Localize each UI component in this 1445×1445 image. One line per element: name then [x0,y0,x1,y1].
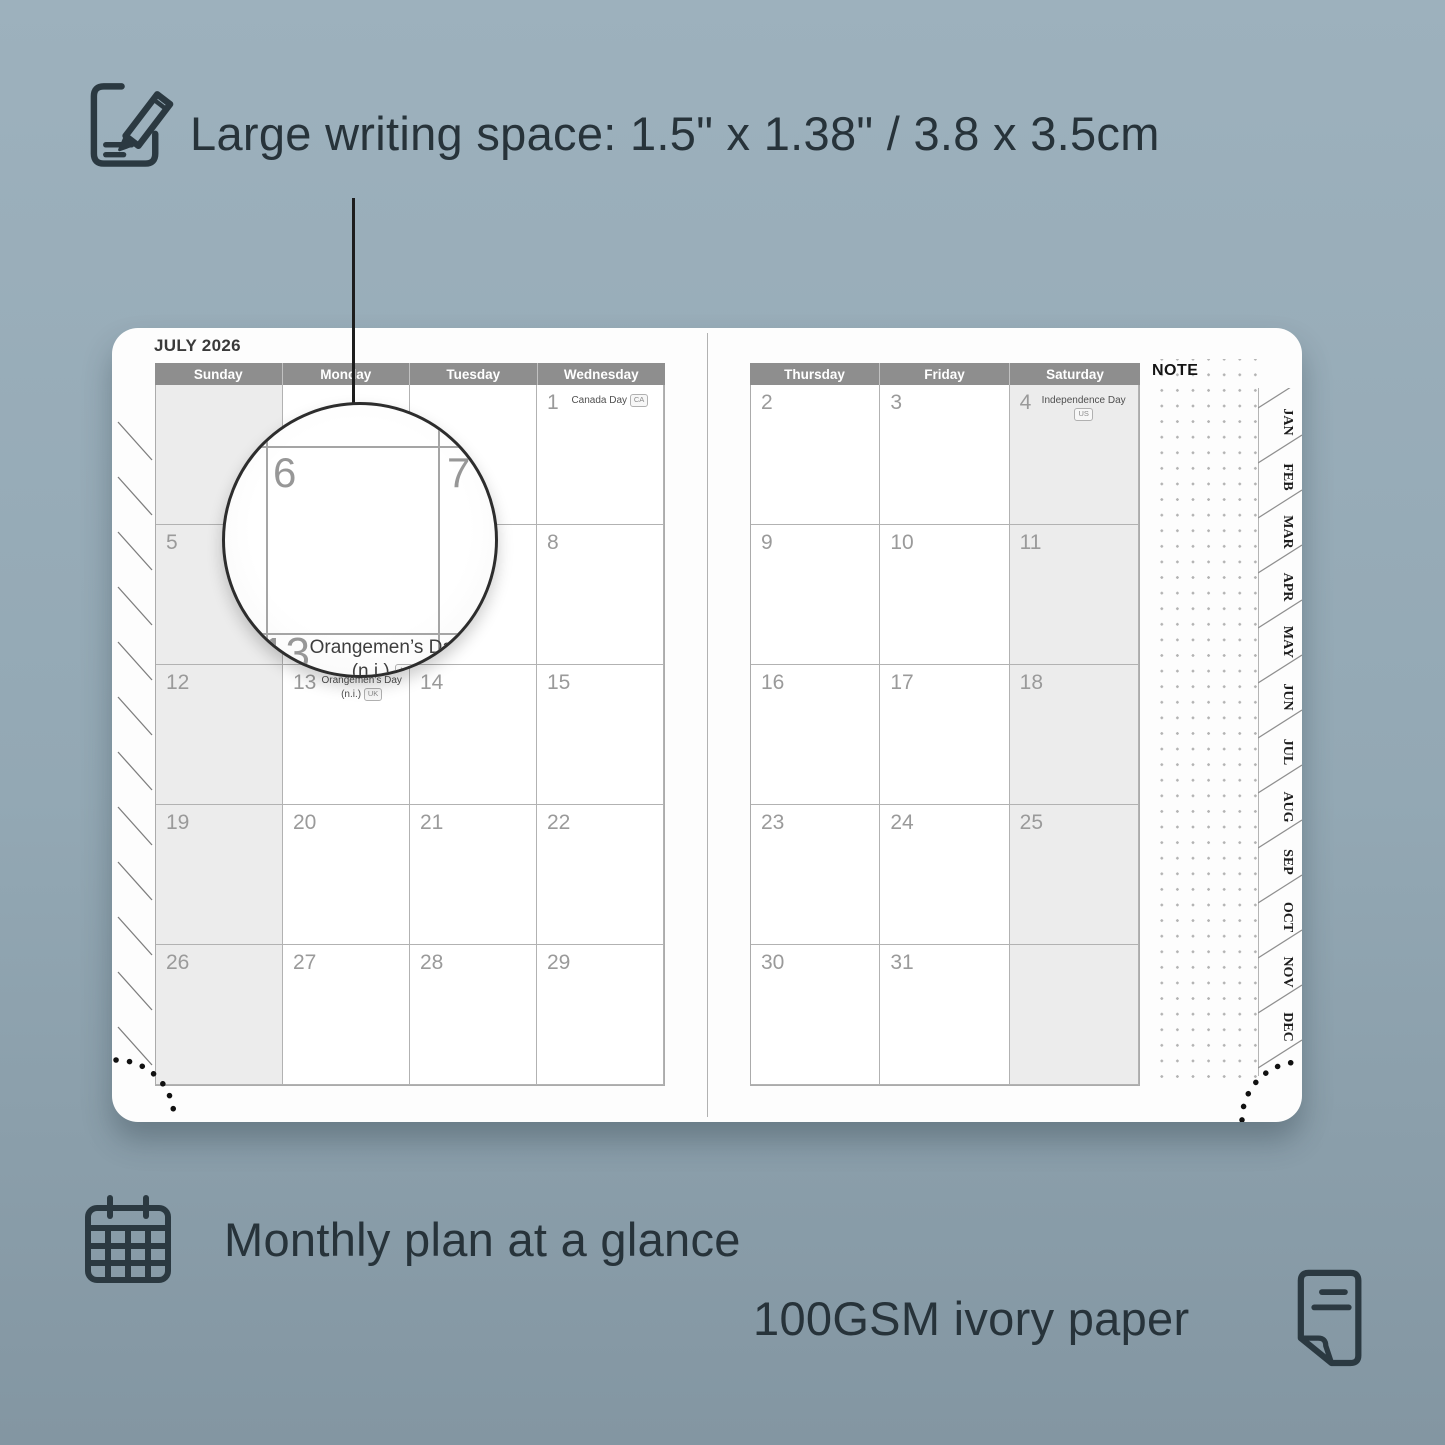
day-cell-23: 23 [751,805,880,945]
day-cell-30: 30 [751,945,880,1085]
date-number: 12 [156,665,189,695]
magnified-grid-line [225,446,495,448]
date-number: 25 [1010,805,1043,835]
day-cell-15: 15 [537,665,664,805]
day-cell-13: 13Orangemen’s Day (n.i.) UK [283,665,410,805]
day-cell-18: 18 [1010,665,1139,805]
month-tab-strip: JANFEBMARAPRMAYJUNJULAUGSEPOCTNOVDEC [1258,388,1302,1078]
pencil-note-icon [84,74,179,174]
day-cell-2: 2 [751,385,880,525]
month-tab-jan: JAN [1280,408,1295,435]
date-number: 10 [880,525,913,555]
day-cell-11: 11 [1010,525,1139,665]
date-number: 21 [410,805,443,835]
month-title: JULY 2026 [154,336,241,356]
day-cell-26: 26 [156,945,283,1085]
calendar-grid-icon [80,1192,176,1288]
note-dot-grid [1148,359,1260,1085]
product-image: { "annotations": { "top": { "icon": "pen… [0,0,1445,1445]
date-number: 18 [1010,665,1043,695]
month-tab-jul: JUL [1280,739,1295,765]
date-number: 24 [880,805,913,835]
month-tab-may: MAY [1280,626,1295,658]
date-number: 19 [156,805,189,835]
day-cell-1: 1Canada Day CA [537,385,664,525]
magnified-holiday-text: Orangemen’s Day (n.i.) UK [307,636,465,678]
day-cell-3: 3 [880,385,1009,525]
day-header-tuesday: Tuesday [410,363,538,386]
day-header-monday: Monday [283,363,411,386]
left-edge-tab-hatching [114,420,154,1070]
date-number: 23 [751,805,784,835]
day-cell-22: 22 [537,805,664,945]
month-tab-jun: JUN [1280,683,1295,710]
month-tab-sep: SEP [1280,849,1295,875]
date-number: 4 [1010,385,1032,415]
date-number: 2 [751,385,773,415]
date-number: 31 [880,945,913,975]
country-badge: US [1074,408,1092,421]
date-number [1010,945,1020,951]
note-label: NOTE [1152,362,1198,380]
right-day-cells: 234Independence Day US910111617182324253… [750,385,1140,1086]
paper-sheet-icon [1274,1262,1366,1372]
month-tab-aug: AUG [1280,791,1295,822]
day-header-wednesday: Wednesday [538,363,666,386]
date-number: 5 [156,525,178,555]
day-header-saturday: Saturday [1010,363,1140,386]
day-cell-27: 27 [283,945,410,1085]
bottom-left-annotation-text: Monthly plan at a glance [224,1212,741,1267]
date-number: 30 [751,945,784,975]
day-cell-10: 10 [880,525,1009,665]
month-tab-oct: OCT [1280,902,1295,933]
date-number: 16 [751,665,784,695]
date-number: 15 [537,665,570,695]
date-number [283,385,293,391]
top-annotation-text: Large writing space: 1.5" x 1.38" / 3.8 … [190,106,1160,161]
day-cell-24: 24 [880,805,1009,945]
bottom-right-annotation-text: 100GSM ivory paper [753,1291,1189,1346]
date-number [156,385,166,391]
magnified-day-6: 6 [273,449,296,497]
date-number: 29 [537,945,570,975]
day-cell-12: 12 [156,665,283,805]
date-number: 27 [283,945,316,975]
month-tab-mar: MAR [1280,515,1295,549]
day-cell-25: 25 [1010,805,1139,945]
day-cell-8: 8 [537,525,664,665]
magnified-day-7: 7 [447,449,470,497]
country-badge: UK [364,688,382,701]
date-number [410,385,420,391]
magnified-day-13: 13 [261,629,310,678]
day-cell-empty [1010,945,1139,1085]
month-tab-dec: DEC [1280,1012,1295,1042]
left-day-headers: SundayMondayTuesdayWednesday [155,363,665,385]
day-cell-28: 28 [410,945,537,1085]
page-spine [707,333,708,1117]
right-page: ThursdayFridaySaturday 234Independence D… [750,363,1140,1086]
month-tab-apr: APR [1280,573,1295,603]
day-cell-14: 14 [410,665,537,805]
magnifier-circle: 6 7 13 Orangemen’s Day (n.i.) UK [222,402,498,678]
country-badge: CA [630,394,648,407]
day-cell-4: 4Independence Day US [1010,385,1139,525]
planner-spread: JULY 2026 SundayMondayTuesdayWednesday 1… [112,328,1302,1122]
right-day-headers: ThursdayFridaySaturday [750,363,1140,385]
day-cell-29: 29 [537,945,664,1085]
date-number: 8 [537,525,559,555]
day-cell-17: 17 [880,665,1009,805]
day-cell-21: 21 [410,805,537,945]
date-number: 22 [537,805,570,835]
date-number: 17 [880,665,913,695]
date-number: 28 [410,945,443,975]
month-tab-feb: FEB [1280,463,1295,490]
day-header-friday: Friday [880,363,1010,386]
date-number: 26 [156,945,189,975]
date-number: 3 [880,385,902,415]
day-cell-19: 19 [156,805,283,945]
day-header-thursday: Thursday [750,363,880,386]
day-cell-20: 20 [283,805,410,945]
date-number: 9 [751,525,773,555]
date-number: 11 [1010,525,1042,555]
month-tab-nov: NOV [1280,956,1295,987]
day-cell-9: 9 [751,525,880,665]
day-cell-16: 16 [751,665,880,805]
day-cell-31: 31 [880,945,1009,1085]
day-header-sunday: Sunday [155,363,283,386]
holiday-label: Canada Day CA [559,385,664,408]
date-number: 1 [537,385,559,415]
callout-leader-line [352,198,355,408]
holiday-label: Independence Day US [1031,385,1139,422]
date-number: 20 [283,805,316,835]
